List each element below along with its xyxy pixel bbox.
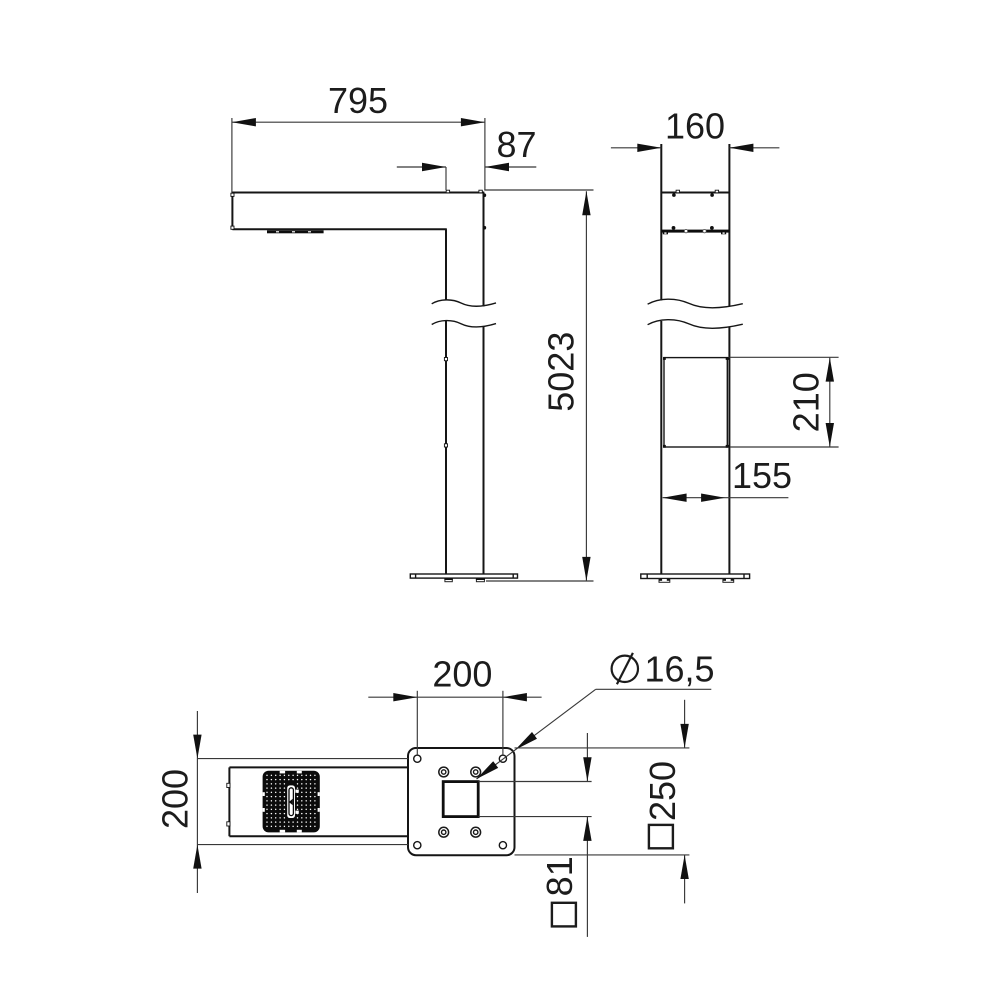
svg-text:160: 160: [665, 106, 725, 147]
svg-text:795: 795: [328, 80, 388, 121]
svg-text:81: 81: [539, 856, 580, 896]
svg-text:210: 210: [786, 372, 827, 432]
svg-text:250: 250: [642, 761, 683, 821]
svg-text:16,5: 16,5: [644, 649, 714, 690]
svg-text:5023: 5023: [541, 332, 582, 412]
svg-text:155: 155: [732, 455, 792, 496]
svg-text:200: 200: [154, 769, 195, 829]
svg-text:200: 200: [432, 654, 492, 695]
svg-text:87: 87: [496, 124, 536, 165]
